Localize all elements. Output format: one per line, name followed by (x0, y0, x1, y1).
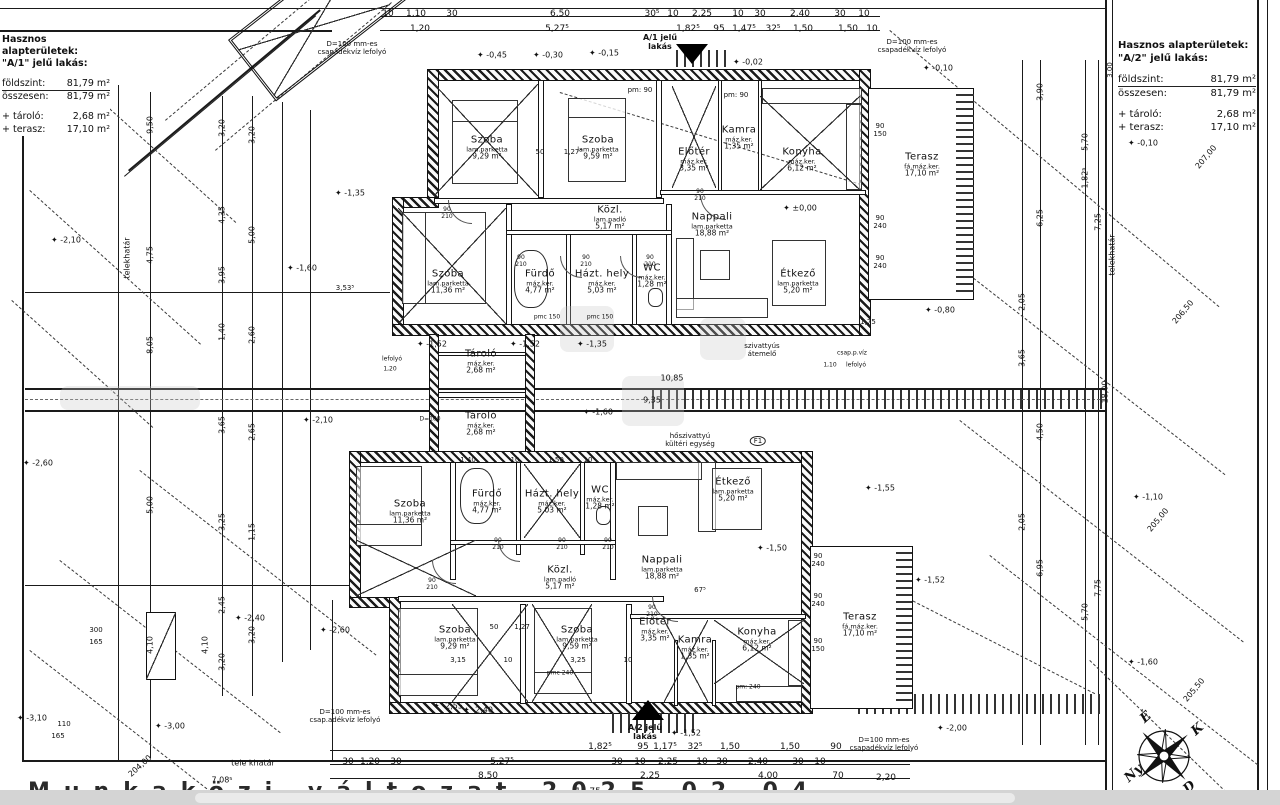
room-label-a1: Szobalam.parketta11,36 m² (427, 269, 469, 294)
room-label-a2: Kamramáz.ker.1,35 m² (678, 635, 713, 660)
dimension-label: 18,00 (1100, 381, 1109, 404)
dimension-label: 10 (814, 757, 825, 767)
room-name: Étkező (777, 269, 819, 280)
room-label-a2: Konyhamáz.ker.6,12 m² (737, 627, 776, 652)
thin-shape (22, 35, 24, 762)
dash-shape (94, 95, 236, 223)
dimension-label: 6,50 (550, 9, 570, 19)
area-table-subtitle: "A/1" jelű lakás: (2, 58, 110, 70)
dimension-label: pm: 90 (724, 91, 749, 99)
room-name: Közl. (544, 565, 576, 576)
dimension-label: 4,35 (217, 206, 226, 224)
room-area: 5,20 m² (712, 495, 754, 503)
dimension-label: 50 (536, 148, 545, 156)
area-row-label: + tároló: (2, 111, 44, 123)
area-row-label: + terasz: (1118, 121, 1164, 134)
dimension-label: 90 240 (873, 214, 886, 230)
thin-shape (1112, 0, 1113, 791)
dimension-label: 8,05 (145, 336, 154, 354)
dimension-label: pm: 90 (628, 86, 653, 94)
thin-shape (330, 750, 910, 751)
dimension-label: 90 210 (515, 255, 526, 269)
dimension-label: 4,50 (1035, 423, 1044, 441)
elevation-marker: -0,02 (733, 57, 763, 66)
dimension-label: 90 210 (644, 255, 655, 269)
dimension-label: 32⁵ (687, 742, 702, 752)
elevation-marker: -1,60 (1128, 657, 1158, 666)
area-row: összesen: 81,79 m² (1118, 87, 1256, 100)
dimension-label: 2,25 (658, 757, 678, 767)
area-row-value: 81,79 m² (67, 78, 110, 90)
dimension-label: 5,70 (1080, 133, 1089, 151)
room-label-a2: Szobalam.parketta9,29 m² (434, 625, 476, 650)
room-label-a1: Házt. helymáz.ker.5,03 m² (575, 269, 629, 294)
room-label-a2: Közl.lam.padló5,17 m² (544, 565, 576, 590)
room-name: Tároló (465, 349, 497, 360)
area-table-a2: Hasznos alapterületek: "A/2" jelű lakás:… (1118, 40, 1256, 134)
dimension-label: 2,60 (247, 326, 256, 344)
thin-shape (1257, 0, 1259, 805)
xbox-shape (356, 540, 476, 596)
dimension-label: pmc 150 (587, 315, 613, 322)
area-row-value: 17,10 m² (67, 124, 110, 136)
elevation-marker: -2,55 (433, 701, 463, 710)
dimension-label: 2,40 (790, 9, 810, 19)
dimension-label: 2,05 (1017, 513, 1026, 531)
elevation-marker: -3,00 (155, 721, 185, 730)
dimension-label: 10 (584, 456, 593, 464)
dimension-label: 1,50 (720, 742, 740, 752)
dimension-label: 5,27⁵ (545, 24, 569, 34)
area-row-label: összesen: (2, 91, 49, 103)
dimension-label: 6,95 (1035, 559, 1044, 577)
room-area: 2,68 m² (465, 429, 497, 437)
dimension-label: 90 210 (602, 538, 613, 552)
dimension-label: 3,65 (1017, 349, 1026, 367)
room-name: Szoba (389, 499, 431, 510)
bottom-scroll-bar[interactable] (0, 790, 1280, 805)
room-area: 9,29 m² (434, 643, 476, 651)
dimension-label: 50 (490, 623, 499, 631)
room-name: Fürdő (472, 489, 502, 500)
room-name: Konyha (737, 627, 776, 638)
elevation-marker: -1,50 (757, 543, 787, 552)
dimension-label: 10 (667, 9, 678, 19)
dimension-label: 2,20 (876, 773, 896, 783)
wall-shape (428, 70, 870, 80)
dimension-label: 4,75 (145, 246, 154, 264)
dimension-label: 1,17⁵ (653, 742, 677, 752)
area-table-title: Hasznos alapterületek: (2, 34, 110, 58)
dimension-label: 30 (342, 757, 353, 767)
dimension-label: 3,00 (1106, 62, 1114, 78)
dimension-label: D=100 mm-es csapadékvíz lefolyó (878, 38, 947, 54)
combH-shape (956, 94, 974, 294)
elevation-marker: ±0,00 (783, 203, 817, 212)
room-name: WC (585, 485, 614, 496)
dimension-label: 1,15 (247, 523, 256, 541)
area-row-label: + tároló: (1118, 108, 1162, 121)
xbox-shape (760, 96, 860, 190)
dimension-label: 90 210 (580, 255, 591, 269)
room-name: Közl. (594, 205, 626, 216)
elevation-marker: -1,52 (417, 339, 447, 348)
dimension-label: 1,10 (823, 363, 836, 370)
elevation-marker: -2,40 (235, 613, 265, 622)
wall-shape (526, 335, 534, 457)
area-row-label: földszint: (2, 78, 45, 90)
area-row: földszint: 81,79 m² (1118, 73, 1256, 87)
dimension-label: 30 (611, 757, 622, 767)
room-area: 1,35 m² (678, 653, 713, 661)
elevation-marker: -3,10 (17, 713, 47, 722)
room-label-a1: Nappalilam.parketta18,88 m² (691, 212, 733, 237)
dimension-label: 5,00 (145, 496, 154, 514)
scroll-thumb[interactable] (195, 793, 1015, 803)
room-label-a2: Teraszfá.máz.ker.17,10 m² (842, 612, 878, 637)
combH-shape (896, 552, 912, 704)
room-area: 4,77 m² (525, 287, 555, 295)
room-area: 4,77 m² (472, 507, 502, 515)
dimension-label: csap.p.víz (837, 351, 867, 358)
elevation-marker: -0,15 (589, 48, 619, 57)
dimension-label: 90 210 (556, 538, 567, 552)
elevation-marker: -2,00 (937, 723, 967, 732)
area-row-value: 81,79 m² (1210, 87, 1256, 100)
dimension-label: 7,25 (1093, 213, 1102, 231)
dimension-label: 90 210 (492, 538, 503, 552)
room-name: Kamra (722, 125, 757, 136)
dimension-label: 90 150 (811, 637, 824, 653)
dimension-label: 10 (858, 9, 869, 19)
dimension-label: 90 210 (441, 207, 452, 221)
thin-shape (332, 600, 333, 760)
thin-shape (310, 110, 311, 650)
area-row: + tároló: 2,68 m² (1118, 108, 1256, 121)
dimension-label: 30⁵ (644, 9, 659, 19)
area-row-label: összesen: (1118, 87, 1167, 100)
sofa (676, 298, 768, 318)
wall-shape (393, 325, 870, 335)
room-name: Szoba (434, 625, 476, 636)
dimension-label: 3,20 (247, 626, 256, 644)
room-area: 11,36 m² (427, 287, 469, 295)
dimension-label: 1,50 (548, 456, 564, 464)
room-name: Előtér (678, 147, 710, 158)
dimension-label: 300 (89, 626, 102, 634)
dimension-label: 1,10 (406, 9, 426, 19)
elevation-marker: -0,30 (533, 50, 563, 59)
room-area: 5,03 m² (575, 287, 629, 295)
part-shape (632, 232, 637, 325)
dimension-label: 2,05 (1017, 293, 1026, 311)
elevation-marker: -0,80 (925, 305, 955, 314)
dimension-label: lefolyó (846, 363, 866, 370)
room-name: Terasz (842, 612, 878, 623)
area-table-title: Hasznos alapterületek: (1118, 40, 1256, 53)
part-shape (656, 80, 662, 198)
thin-shape (252, 96, 253, 696)
elevation-marker: -1,35 (335, 188, 365, 197)
dimension-label: 3,20 (247, 126, 256, 144)
dimension-label: 9,50 (145, 116, 154, 134)
dimension-label: 30 (754, 9, 765, 19)
room-area: 2,68 m² (465, 367, 497, 375)
table (700, 250, 730, 280)
thin-shape (282, 102, 283, 662)
dimension-label: 110 (57, 720, 70, 728)
dimension-label: 10 (382, 9, 393, 19)
dash-shape (959, 420, 1243, 642)
thin-shape (25, 410, 1105, 412)
dimension-label: 206,50 (1170, 298, 1195, 325)
dimension-label: 204,00 (127, 753, 154, 779)
table (638, 506, 668, 536)
entrance-marker-a2 (632, 700, 664, 720)
dimension-label: 1,50 (838, 24, 858, 34)
dimension-label: 3,20 (217, 119, 226, 137)
room-name: Konyha (782, 147, 821, 158)
elevation-marker: -0,10 (1128, 138, 1158, 147)
xbox-shape (398, 208, 506, 324)
wm-shape (700, 318, 746, 360)
elevation-marker: -1,60 (583, 407, 613, 416)
elevation-marker: -2,10 (51, 235, 81, 244)
dimension-label: 1,20 (383, 367, 396, 374)
dimension-label: 1,27⁵ (564, 148, 582, 156)
dimension-label: 5,27⁵ (490, 757, 514, 767)
part-shape (666, 204, 672, 325)
room-label-a2: Nappalilam.parketta18,88 m² (641, 555, 683, 580)
thin-shape (22, 760, 1106, 762)
part-shape (538, 80, 544, 198)
dimension-label: 3,25 (217, 513, 226, 531)
room-label-a2: Fürdőmáz.ker.4,77 m² (472, 489, 502, 514)
dimension-label: 10 (504, 656, 513, 664)
part-shape (506, 204, 512, 325)
elevation-marker: -1,52 (671, 728, 701, 737)
area-row-value: 2,68 m² (73, 111, 110, 123)
room-area: 1,28 m² (585, 503, 614, 511)
room-name: Nappali (641, 555, 683, 566)
dimension-label: 2,45 (217, 596, 226, 614)
room-name: Házt. hely (525, 489, 579, 500)
room-name: Szoba (556, 625, 598, 636)
area-row: + terasz: 17,10 m² (2, 124, 110, 136)
dimension-label: 165 (51, 732, 64, 740)
room-label-a1: Konyhamáz.ker.6,12 m² (782, 147, 821, 172)
dimension-label: 3,65 (217, 416, 226, 434)
comb-v-shape (652, 390, 1104, 409)
wall-shape (350, 452, 812, 462)
room-label-a1: Szobalam.parketta9,29 m² (466, 135, 508, 160)
room-area: 17,10 m² (842, 630, 878, 638)
dimension-label: 3,25 (570, 656, 586, 664)
dimension-label: 3,53⁵ (336, 284, 354, 292)
room-label-a1: Szobalam.parketta9,59 m² (577, 135, 619, 160)
room-label-a2: Étkezőlam.parketta5,20 m² (712, 477, 754, 502)
elevation-marker: -1,10 (1133, 492, 1163, 501)
area-row: összesen: 81,79 m² (2, 91, 110, 103)
dimension-label: 1,40 (217, 323, 226, 341)
room-area: 1,35 m² (722, 143, 757, 151)
entrance-marker-a1 (676, 44, 708, 64)
room-area: 5,17 m² (544, 583, 576, 591)
toilet (648, 288, 663, 307)
area-row-label: + terasz: (2, 124, 45, 136)
area-table-a1: Hasznos alapterületek: "A/1" jelű lakás:… (2, 34, 110, 136)
room-label-a2: Tárolómáz.ker.2,68 m² (465, 411, 497, 436)
dash-shape (29, 190, 201, 345)
dimension-label: 90 240 (873, 254, 886, 270)
wall-shape (430, 335, 438, 457)
area-row: + tároló: 2,68 m² (2, 111, 110, 123)
room-label-a2: Előtérmáz.ker.3,35 m² (639, 617, 671, 642)
room-label-a2: Szobalam.parketta9,59 m² (556, 625, 598, 650)
part-shape (660, 190, 866, 195)
dimension-label: 1,82⁵ (676, 24, 700, 34)
thin-shape (118, 85, 119, 761)
room-area: 11,36 m² (389, 517, 431, 525)
dimension-label: 30 (446, 9, 457, 19)
dimension-label: 30 (834, 9, 845, 19)
dimension-label: 95 (637, 742, 648, 752)
dimension-label: 4,10 (200, 636, 209, 654)
dimension-label: telekhatár (1107, 234, 1116, 275)
dimension-label: D=100 (419, 417, 440, 424)
part-shape (506, 230, 672, 235)
dimension-label: 1,40 (460, 456, 476, 464)
dimension-label: 3,90 (1035, 83, 1044, 101)
dimension-label: tele khatár (231, 758, 275, 767)
dimension-label: 1,20 (410, 24, 430, 34)
thin-shape (25, 585, 352, 586)
dimension-label: 2,40 (748, 757, 768, 767)
room-label-a1: Előtérmáz.ker.3,35 m² (678, 147, 710, 172)
dimension-label: A/1 jelű lakás (643, 33, 677, 51)
room-name: Nappali (691, 212, 733, 223)
elevation-marker: -1,52 (510, 339, 540, 348)
dimension-label: 9,35 (643, 395, 661, 404)
dimension-label: 1,75 (860, 318, 876, 326)
dimension-label: 1,50 (793, 24, 813, 34)
xbox-shape (452, 604, 528, 702)
dimension-label: szivattyús átemelő (744, 342, 779, 358)
dimension-label: 67⁵ (694, 586, 706, 594)
elevation-marker: -2,40 (463, 705, 493, 714)
elevation-marker: -1,60 (287, 263, 317, 272)
room-label-a1: Tárolómáz.ker.2,68 m² (465, 349, 497, 374)
room-name: Fürdő (525, 269, 555, 280)
dimension-label: 5,70 (1080, 603, 1089, 621)
area-row-value: 81,79 m² (67, 91, 110, 103)
room-label-a1: Közl.lam.padló5,17 m² (594, 205, 626, 230)
room-area: 17,10 m² (904, 170, 940, 178)
dimension-label: 10 (624, 656, 633, 664)
boxg-shape (568, 98, 626, 118)
room-area: 18,88 m² (691, 230, 733, 238)
room-area: 5,20 m² (777, 287, 819, 295)
dimension-label: 2,65 (247, 423, 256, 441)
dimension-label: 30 (716, 757, 727, 767)
dimension-label: D=100 mm-es csapadékvíz lefolyó (850, 736, 919, 752)
elevation-marker: -2,10 (303, 415, 333, 424)
room-label-a1: Étkezőlam.parketta5,20 m² (777, 269, 819, 294)
sofa (616, 462, 702, 480)
dimension-label: 30 (792, 757, 803, 767)
area-table-subtitle: "A/2" jelű lakás: (1118, 53, 1256, 66)
dimension-label: 90 240 (811, 592, 824, 608)
xbox-shape (532, 604, 592, 702)
dimension-label: 7,75 (1093, 579, 1102, 597)
room-area: 9,59 m² (556, 643, 598, 651)
room-name: Kamra (678, 635, 713, 646)
part-shape (438, 392, 526, 398)
wm-shape (60, 386, 200, 410)
part-shape (398, 596, 664, 602)
floor-plan-sheet: Hasznos alapterületek: "A/1" jelű lakás:… (0, 0, 1280, 805)
dimension-label: 90 240 (811, 552, 824, 568)
dimension-label: telekhatár (122, 237, 131, 278)
dimension-label: 1,50 (780, 742, 800, 752)
thin-shape (25, 292, 390, 293)
dimension-label: 10 (634, 757, 645, 767)
dimension-label: lefolyó (382, 357, 402, 364)
room-name: Szoba (466, 135, 508, 146)
room-name: Tároló (465, 411, 497, 422)
room-area: 6,12 m² (782, 165, 821, 173)
dimension-label: A/2 jelű lakás (628, 723, 662, 741)
dimension-label: 205,50 (1181, 676, 1206, 703)
area-row-value: 81,79 m² (1210, 73, 1256, 86)
dimension-label: 90 210 (694, 189, 705, 203)
dimension-label: 3,20 (217, 653, 226, 671)
dimension-label: 10 (696, 757, 707, 767)
dimension-label: 2,25 (692, 9, 712, 19)
dimension-label: 1,82⁵ (1080, 167, 1089, 188)
room-label-a1: Kamramáz.ker.1,35 m² (722, 125, 757, 150)
room-area: 3,35 m² (639, 635, 671, 643)
dimension-label: 90 210 (646, 605, 657, 619)
dimension-label: 205,00 (1145, 506, 1170, 533)
room-name: Szoba (427, 269, 469, 280)
room-label-a1: Fürdőmáz.ker.4,77 m² (525, 269, 555, 294)
dimension-label: 1,20 (360, 757, 380, 767)
dimension-label: 90 (830, 742, 841, 752)
room-area: 6,12 m² (737, 645, 776, 653)
elevation-marker: -2,60 (320, 625, 350, 634)
dimension-label: 3,15 (450, 656, 466, 664)
dimension-label: 30 (390, 757, 401, 767)
room-area: 1,28 m² (637, 281, 666, 289)
dimension-label: 1,47⁵ (732, 24, 756, 34)
elevation-marker: -1,35 (577, 339, 607, 348)
elevation-marker: -1,52 (915, 575, 945, 584)
room-label-a2: Szobalam.parketta11,36 m² (389, 499, 431, 524)
dimension-label: 32⁵ (765, 24, 780, 34)
area-row-label: földszint: (1118, 73, 1164, 86)
dimension-label: 4,10 (145, 636, 154, 654)
elevation-marker: -0,45 (477, 50, 507, 59)
dimension-label: pmc 240 (547, 671, 573, 678)
room-area: 5,03 m² (525, 507, 579, 515)
room-name: Terasz (904, 152, 940, 163)
dimension-label: pm: 240 (735, 685, 760, 692)
room-area: 3,35 m² (678, 165, 710, 173)
room-area: 18,88 m² (641, 573, 683, 581)
room-name: Házt. hely (575, 269, 629, 280)
dimension-label: D=100 mm-es csapadékvíz lefolyó (318, 40, 387, 56)
